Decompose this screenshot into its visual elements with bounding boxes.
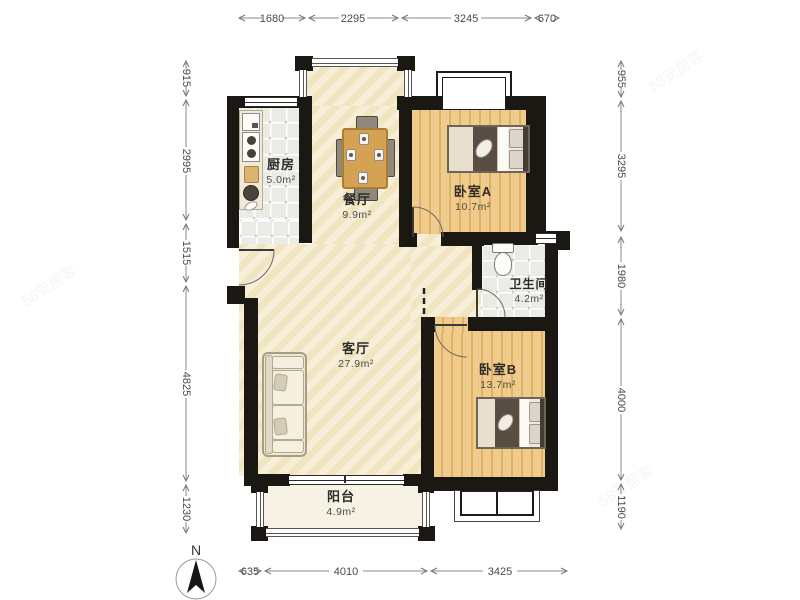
room-name: 卫生间 bbox=[509, 275, 548, 292]
plate bbox=[358, 172, 368, 184]
faucet bbox=[252, 123, 258, 128]
headboard bbox=[523, 127, 528, 171]
room-label-dining: 餐厅 9.9m² bbox=[342, 189, 371, 221]
dining-table bbox=[342, 128, 388, 189]
wall bbox=[545, 231, 558, 491]
bedroom-a-window bbox=[442, 77, 506, 110]
dimension-label: 915 bbox=[180, 69, 192, 87]
toilet bbox=[494, 252, 512, 276]
dining-bay-railing bbox=[404, 70, 412, 97]
kitchen-window bbox=[245, 97, 297, 107]
window-mullion bbox=[496, 492, 498, 514]
burner bbox=[247, 136, 256, 145]
room-name: 卧室A bbox=[454, 181, 492, 200]
wall bbox=[227, 96, 239, 248]
dimension-label: 3425 bbox=[488, 566, 512, 578]
watermark: 58安居客 bbox=[17, 260, 80, 311]
sofa-pillow bbox=[273, 417, 288, 435]
bathroom-window bbox=[536, 233, 556, 244]
dimension-chain-top: 1680 2295 3245 670 bbox=[239, 13, 559, 25]
bed-sheet bbox=[519, 399, 529, 447]
pot bbox=[243, 185, 259, 201]
dimension-label: 3245 bbox=[454, 13, 478, 25]
dimension-label: 1230 bbox=[180, 497, 192, 521]
room-label-kitchen: 厨房 5.0m² bbox=[266, 154, 295, 186]
sofa bbox=[262, 352, 307, 457]
room-name: 客厅 bbox=[338, 338, 374, 357]
room-area: 9.9m² bbox=[342, 209, 371, 221]
room-name: 厨房 bbox=[266, 154, 295, 173]
balcony-sliding-door bbox=[289, 475, 404, 485]
wall bbox=[299, 96, 312, 243]
room-label-bathroom: 卫生间 4.2m² bbox=[509, 275, 548, 305]
dimension-label: 4000 bbox=[615, 388, 627, 412]
room-area: 4.9m² bbox=[326, 506, 355, 518]
stove bbox=[242, 132, 260, 162]
room-area: 10.7m² bbox=[454, 201, 492, 213]
room-area: 4.2m² bbox=[509, 293, 548, 305]
plate bbox=[374, 149, 384, 161]
room-area: 13.7m² bbox=[479, 379, 517, 391]
wall bbox=[397, 56, 415, 71]
plate bbox=[359, 133, 369, 145]
dining-bay-railing bbox=[299, 70, 307, 97]
balcony-railing bbox=[256, 492, 264, 527]
cutting-board bbox=[244, 166, 259, 183]
dimension-label: 955 bbox=[615, 70, 627, 88]
bedroom-b-bay-window bbox=[460, 490, 534, 516]
dining-bay-railing bbox=[312, 58, 398, 67]
dimension-label: 635 bbox=[241, 566, 259, 578]
room-label-bedroom-b: 卧室B 13.7m² bbox=[479, 359, 517, 391]
sofa-armrest bbox=[272, 356, 304, 369]
sofa-back bbox=[265, 355, 273, 454]
bed-blanket bbox=[449, 127, 473, 171]
dining-bay-floor bbox=[306, 62, 406, 108]
kitchen-counter bbox=[239, 110, 263, 210]
bed-sheet bbox=[497, 127, 508, 171]
north-label: N bbox=[191, 542, 201, 558]
kitchen-sink bbox=[242, 113, 260, 131]
north-compass: N bbox=[176, 542, 216, 599]
balcony-post bbox=[418, 476, 434, 493]
sofa-armrest bbox=[272, 440, 304, 453]
headboard bbox=[540, 399, 544, 447]
room-label-living: 客厅 27.9m² bbox=[338, 338, 374, 370]
dimension-chain-bottom: 635 4010 3425 bbox=[239, 566, 567, 578]
burner bbox=[247, 149, 256, 158]
dimension-label: 2995 bbox=[180, 149, 192, 173]
dimension-chain-left: 915 2995 1515 4825 1230 bbox=[180, 61, 192, 533]
dimension-label: 3295 bbox=[615, 154, 627, 178]
dimension-chain-right: 955 3295 1980 4000 1190 bbox=[615, 61, 627, 529]
watermark: 58安居客 bbox=[594, 460, 657, 511]
wall bbox=[399, 96, 412, 247]
wall bbox=[244, 298, 258, 483]
dimension-label: 2295 bbox=[341, 13, 365, 25]
wall bbox=[399, 233, 417, 247]
room-name: 阳台 bbox=[326, 486, 355, 505]
wall bbox=[227, 286, 245, 304]
wall bbox=[421, 322, 434, 482]
room-label-bedroom-a: 卧室A 10.7m² bbox=[454, 181, 492, 213]
wall bbox=[295, 56, 313, 71]
pillow bbox=[509, 150, 524, 169]
dimension-label: 4825 bbox=[180, 372, 192, 396]
wall bbox=[472, 240, 482, 290]
bed-a bbox=[447, 125, 530, 173]
wall bbox=[421, 477, 558, 491]
balcony-railing bbox=[266, 528, 419, 537]
dimension-label: 1980 bbox=[615, 264, 627, 288]
dimension-label: 670 bbox=[538, 13, 556, 25]
floorplan-canvas: 58安居客 58安居客 58安居客 bbox=[0, 0, 800, 600]
sofa-pillow bbox=[273, 373, 288, 392]
bed-blanket bbox=[478, 399, 495, 447]
dimension-label: 4010 bbox=[334, 566, 358, 578]
room-name: 餐厅 bbox=[342, 189, 371, 208]
plate bbox=[346, 149, 356, 161]
room-label-balcony: 阳台 4.9m² bbox=[326, 486, 355, 518]
dimension-label: 1515 bbox=[180, 241, 192, 265]
bed-b bbox=[476, 397, 546, 449]
window-mullion bbox=[344, 476, 346, 483]
room-area: 27.9m² bbox=[338, 358, 374, 370]
dimension-label: 1680 bbox=[260, 13, 284, 25]
balcony-post bbox=[251, 478, 268, 493]
balcony-railing bbox=[422, 492, 430, 527]
balcony-post bbox=[418, 526, 435, 541]
wall bbox=[468, 317, 558, 331]
north-arrow-icon bbox=[187, 560, 205, 593]
pillow bbox=[509, 129, 524, 148]
watermark: 58安居客 bbox=[644, 45, 707, 96]
room-area: 5.0m² bbox=[266, 174, 295, 186]
bedroom-b-doorway-floor bbox=[434, 317, 468, 333]
room-name: 卧室B bbox=[479, 359, 517, 378]
